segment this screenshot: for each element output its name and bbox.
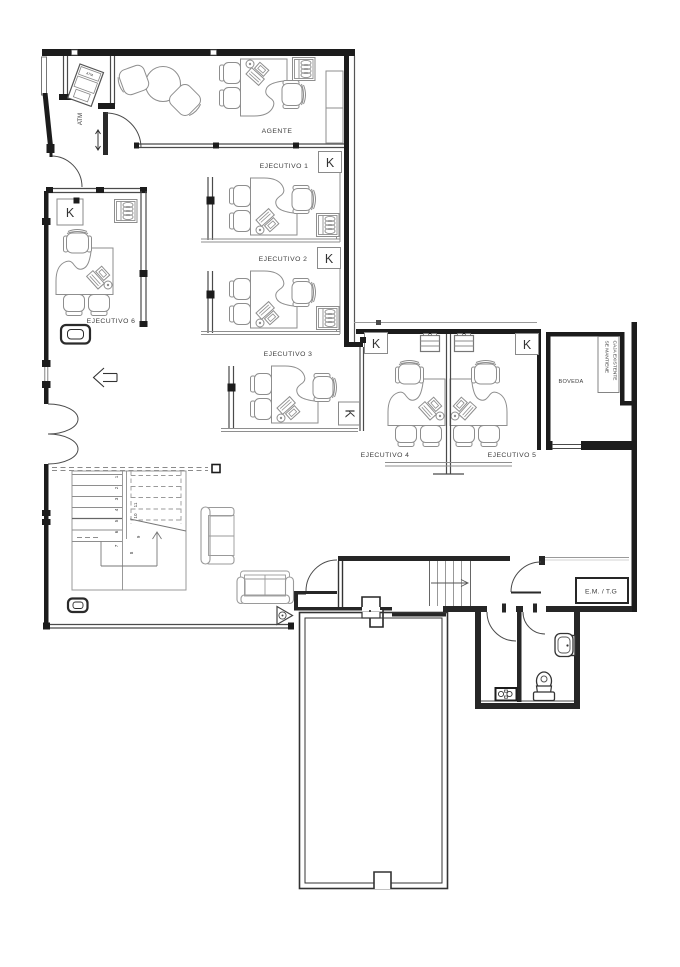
- svg-text:EJECUTIVO 2: EJECUTIVO 2: [259, 256, 308, 263]
- svg-text:CAJA EXISTENTE: CAJA EXISTENTE: [612, 341, 618, 381]
- svg-text:11: 11: [133, 502, 138, 507]
- svg-text:5: 5: [114, 519, 119, 522]
- svg-text:K: K: [66, 206, 75, 220]
- svg-text:E.M. / T.G: E.M. / T.G: [585, 589, 617, 596]
- svg-text:EJECUTIVO 4: EJECUTIVO 4: [361, 452, 410, 459]
- svg-text:8: 8: [129, 551, 134, 554]
- svg-text:SE MANTIENE: SE MANTIENE: [604, 341, 610, 374]
- svg-text:7: 7: [114, 544, 119, 547]
- svg-text:9: 9: [136, 535, 141, 538]
- svg-text:EJECUTIVO 6: EJECUTIVO 6: [87, 318, 136, 325]
- svg-text:1: 1: [114, 475, 119, 478]
- svg-text:AGENTE: AGENTE: [262, 128, 293, 135]
- svg-text:EJECUTIVO 5: EJECUTIVO 5: [488, 452, 537, 459]
- svg-text:K: K: [343, 409, 357, 418]
- svg-text:ATM: ATM: [78, 113, 84, 125]
- svg-text:BOVEDA: BOVEDA: [558, 379, 583, 385]
- svg-text:3: 3: [114, 497, 119, 500]
- svg-text:2: 2: [114, 486, 119, 489]
- svg-text:4: 4: [114, 508, 119, 511]
- svg-text:EJECUTIVO 3: EJECUTIVO 3: [264, 351, 313, 358]
- svg-text:6: 6: [114, 530, 119, 533]
- svg-text:EJECUTIVO 1: EJECUTIVO 1: [260, 163, 309, 170]
- svg-text:10: 10: [133, 513, 138, 519]
